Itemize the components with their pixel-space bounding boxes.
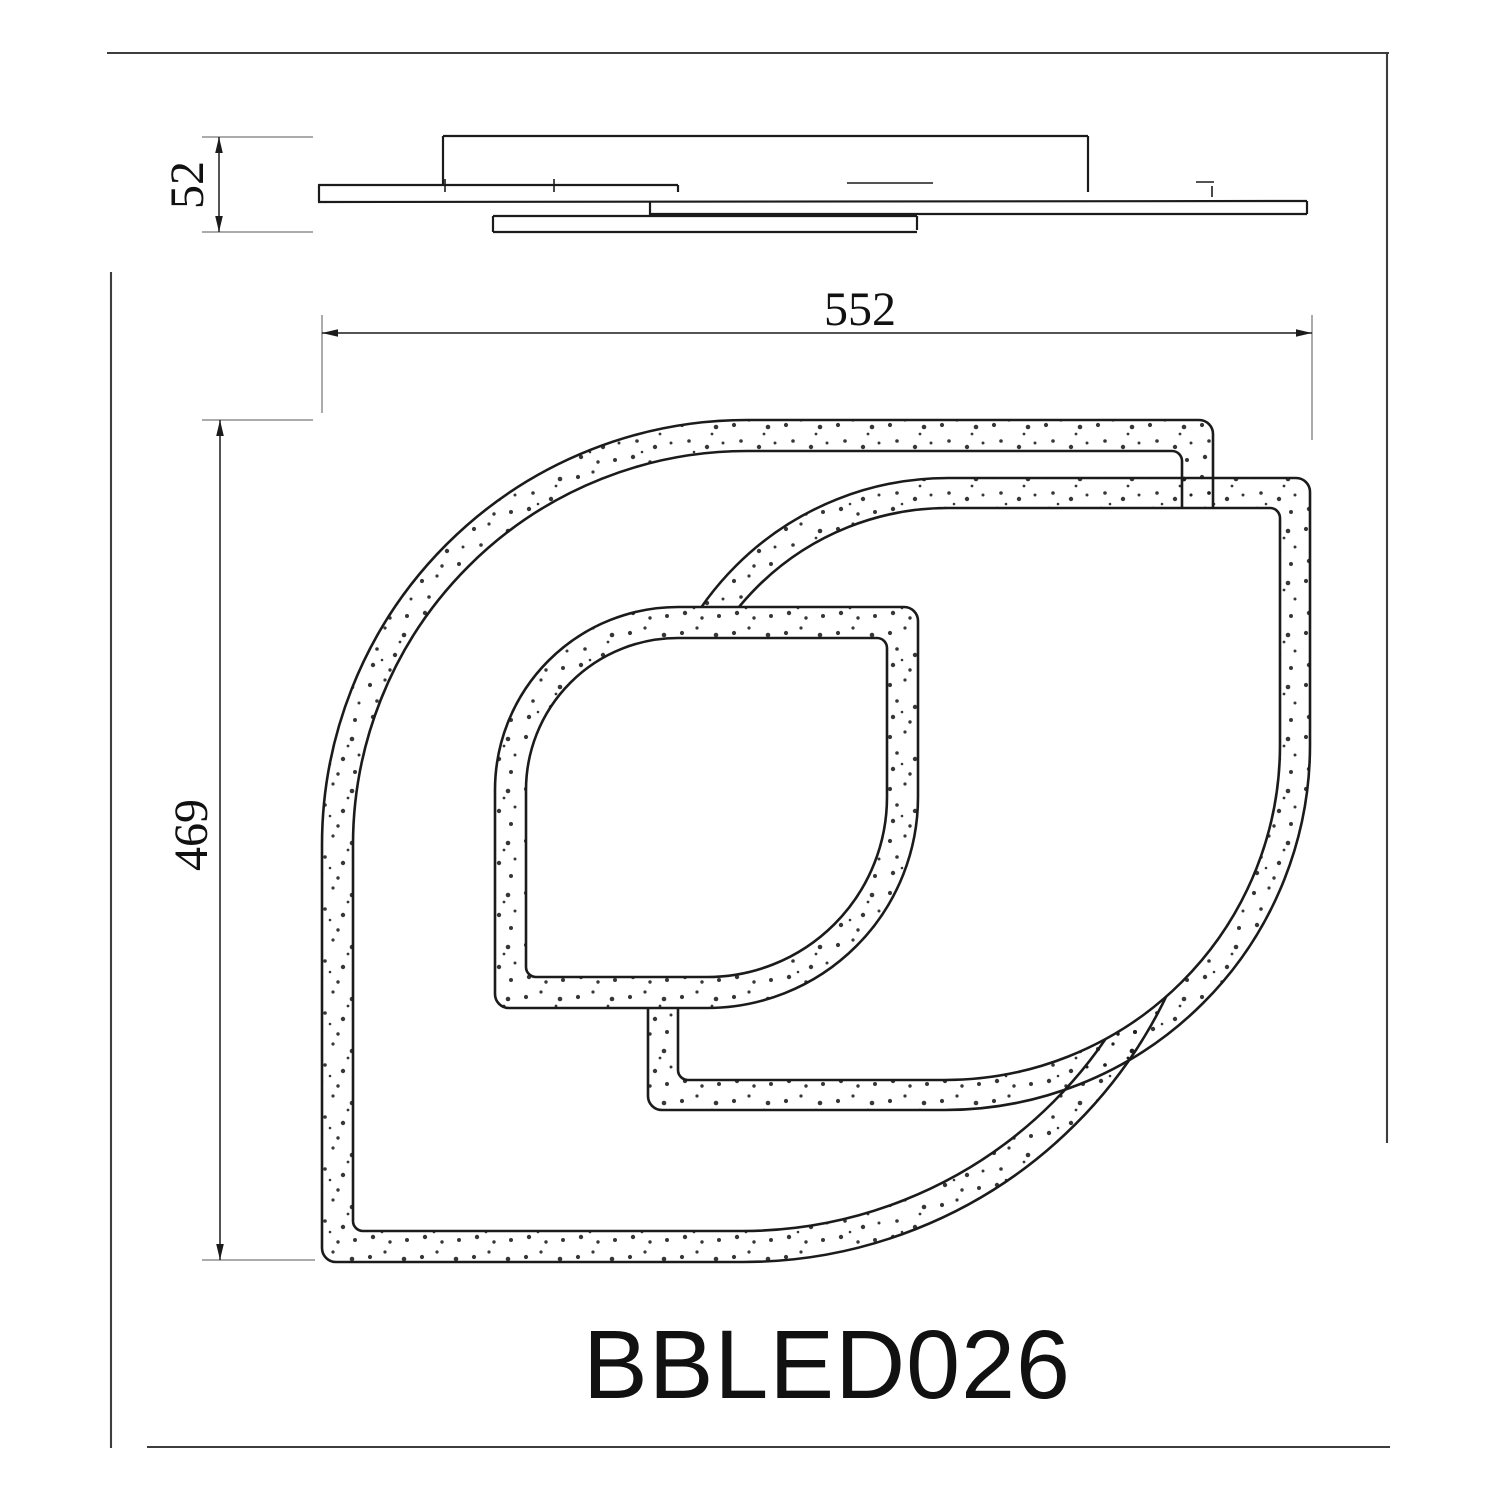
arrow-52-up: [215, 137, 223, 153]
plan-view: [322, 420, 1310, 1262]
drawing-sheet: 52 552 469 BBLED026: [0, 0, 1500, 1500]
arrow-469-up: [216, 420, 224, 436]
dim-469-label: 469: [165, 799, 218, 871]
arrow-552-right: [1296, 329, 1312, 337]
arrow-469-down: [216, 1244, 224, 1260]
small-leaf-ring: [495, 607, 918, 1008]
arrow-52-down: [215, 216, 223, 232]
plate2-top-edge: [318, 201, 1307, 202]
side-view: [318, 136, 1307, 232]
dim-52-label: 52: [161, 161, 214, 209]
product-code-label: BBLED026: [583, 1310, 1071, 1419]
technical-drawing: 52 552 469 BBLED026: [0, 0, 1500, 1500]
arrow-552-left: [322, 329, 338, 337]
dim-552-label: 552: [824, 283, 896, 336]
